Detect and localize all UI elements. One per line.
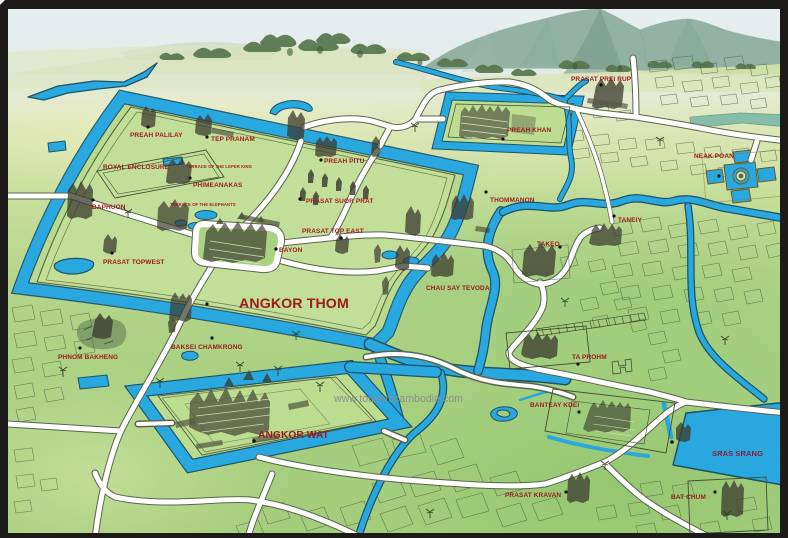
svg-text:ANGKOR WAT: ANGKOR WAT (258, 430, 330, 441)
svg-text:TEP PRANAM: TEP PRANAM (211, 136, 255, 143)
svg-text:THOMMANON: THOMMANON (490, 197, 535, 204)
svg-text:PRASAT TOP EAST: PRASAT TOP EAST (302, 228, 364, 235)
svg-text:TERRACE OF THE LEPER KING: TERRACE OF THE LEPER KING (186, 164, 252, 169)
svg-text:TA PROHM: TA PROHM (572, 354, 607, 361)
svg-text:PRASAT KRAVAN: PRASAT KRAVAN (505, 492, 561, 499)
svg-text:www.tourismcambodia.com: www.tourismcambodia.com (333, 393, 463, 405)
svg-text:PHNOM BAKHENG: PHNOM BAKHENG (58, 354, 118, 361)
svg-text:BANTEAY KDEI: BANTEAY KDEI (530, 402, 579, 409)
svg-text:PREAH PALILAY: PREAH PALILAY (130, 132, 183, 139)
svg-text:BAYON: BAYON (279, 247, 303, 254)
svg-text:PRASAT PREI RUP: PRASAT PREI RUP (571, 76, 632, 83)
svg-text:PRASAT SUOR PRAT: PRASAT SUOR PRAT (306, 198, 373, 205)
svg-text:PHIMEANAKAS: PHIMEANAKAS (193, 182, 243, 189)
svg-text:PREAH PITU: PREAH PITU (324, 158, 365, 165)
svg-text:BAPHUON: BAPHUON (92, 204, 126, 211)
svg-text:TERRACE OF THE ELEPHANTS: TERRACE OF THE ELEPHANTS (170, 202, 236, 207)
svg-text:SRAS SRANG: SRAS SRANG (712, 449, 763, 458)
svg-text:CHAU SAY TEVODA: CHAU SAY TEVODA (426, 285, 490, 292)
svg-text:ANGKOR THOM: ANGKOR THOM (239, 296, 349, 312)
svg-text:BAT CHUM: BAT CHUM (671, 494, 706, 501)
svg-text:ROYAL ENCLOSURE: ROYAL ENCLOSURE (103, 164, 170, 171)
svg-text:BAKSEI CHAMKRONG: BAKSEI CHAMKRONG (171, 344, 243, 351)
svg-text:PRASAT TOPWEST: PRASAT TOPWEST (103, 259, 164, 266)
svg-text:TANEIY: TANEIY (618, 217, 643, 224)
svg-text:NEAK POAN: NEAK POAN (694, 153, 734, 160)
svg-text:PREAH KHAN: PREAH KHAN (507, 127, 552, 134)
svg-text:TAKEO: TAKEO (537, 241, 560, 248)
